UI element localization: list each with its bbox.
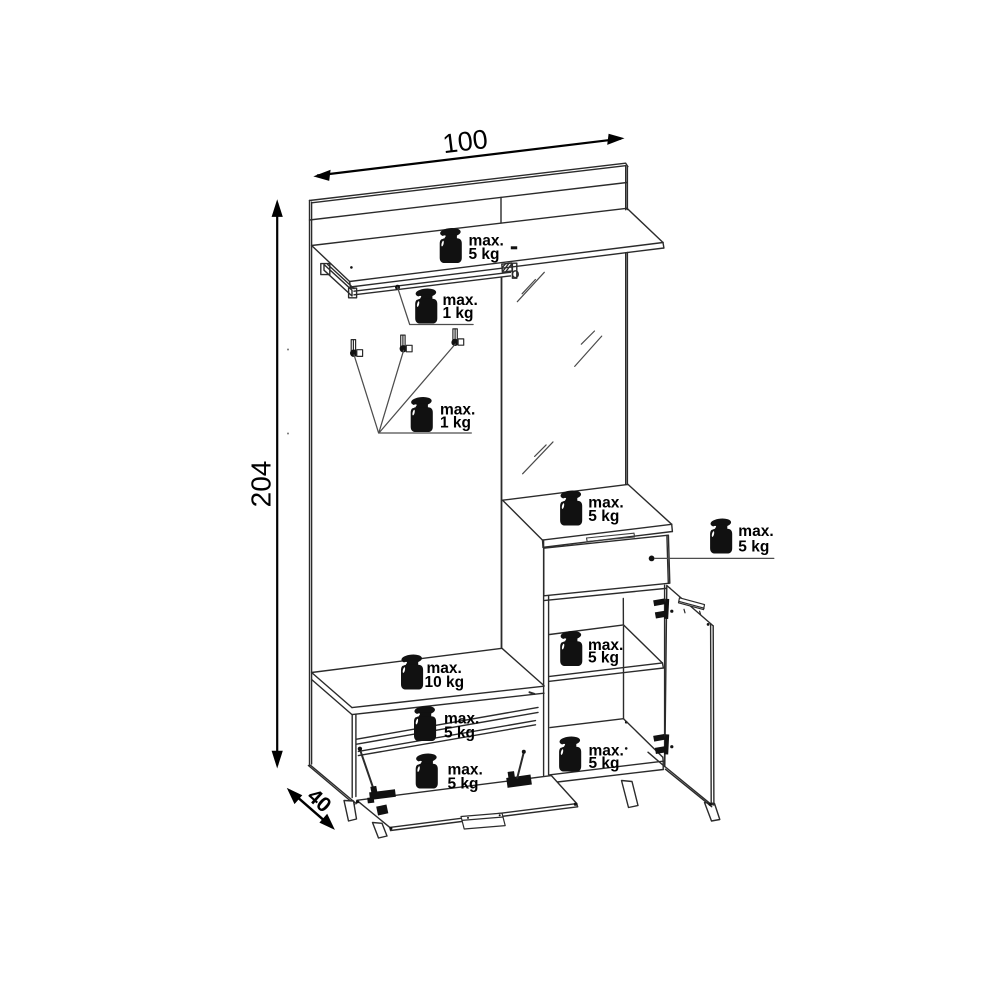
svg-text:5 kg: 5 kg xyxy=(448,775,479,792)
svg-text:100: 100 xyxy=(441,124,489,159)
svg-text:5 kg: 5 kg xyxy=(469,246,500,263)
svg-text:5 kg: 5 kg xyxy=(738,538,769,555)
svg-text:5 kg: 5 kg xyxy=(444,724,475,741)
svg-text:5 kg: 5 kg xyxy=(588,650,619,667)
svg-text:1 kg: 1 kg xyxy=(443,305,474,322)
svg-text:1 kg: 1 kg xyxy=(440,415,471,432)
svg-text:10 kg: 10 kg xyxy=(425,674,465,691)
svg-text:5 kg: 5 kg xyxy=(589,755,620,772)
svg-text:5 kg: 5 kg xyxy=(588,508,619,525)
svg-text:204: 204 xyxy=(246,461,277,508)
svg-text:max.: max. xyxy=(738,523,773,540)
